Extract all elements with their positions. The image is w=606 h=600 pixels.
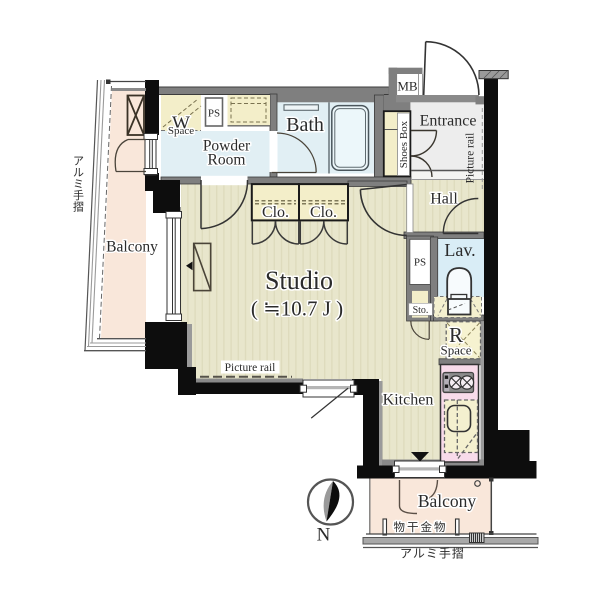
- svg-text:Kitchen: Kitchen: [383, 392, 434, 409]
- svg-text:Lav.: Lav.: [444, 240, 475, 260]
- svg-text:Balcony: Balcony: [418, 491, 477, 511]
- svg-text:Entrance: Entrance: [420, 113, 477, 130]
- svg-text:Space: Space: [168, 125, 194, 137]
- svg-text:Balcony: Balcony: [106, 239, 158, 256]
- svg-text:N: N: [317, 525, 331, 546]
- svg-text:Room: Room: [208, 152, 246, 169]
- svg-text:( ≒10.7 J ): ( ≒10.7 J ): [251, 297, 343, 321]
- svg-text:アルミ手摺: アルミ手摺: [400, 546, 465, 561]
- svg-text:アルミ手摺: アルミ手摺: [73, 156, 84, 214]
- svg-text:Picture rail: Picture rail: [465, 133, 477, 184]
- svg-text:Space: Space: [440, 343, 471, 358]
- svg-text:Hall: Hall: [430, 191, 458, 208]
- svg-text:Bath: Bath: [286, 114, 324, 136]
- svg-text:PS: PS: [414, 257, 426, 269]
- svg-text:Sto.: Sto.: [413, 305, 429, 316]
- svg-text:Shoes Box: Shoes Box: [398, 120, 410, 168]
- svg-text:Clo.: Clo.: [262, 204, 289, 221]
- svg-text:物干金物: 物干金物: [394, 520, 448, 534]
- svg-text:PS: PS: [208, 108, 220, 120]
- svg-text:MB: MB: [397, 79, 418, 94]
- svg-text:Picture rail: Picture rail: [225, 362, 276, 374]
- svg-text:Studio: Studio: [265, 266, 333, 295]
- svg-text:Clo.: Clo.: [310, 204, 337, 221]
